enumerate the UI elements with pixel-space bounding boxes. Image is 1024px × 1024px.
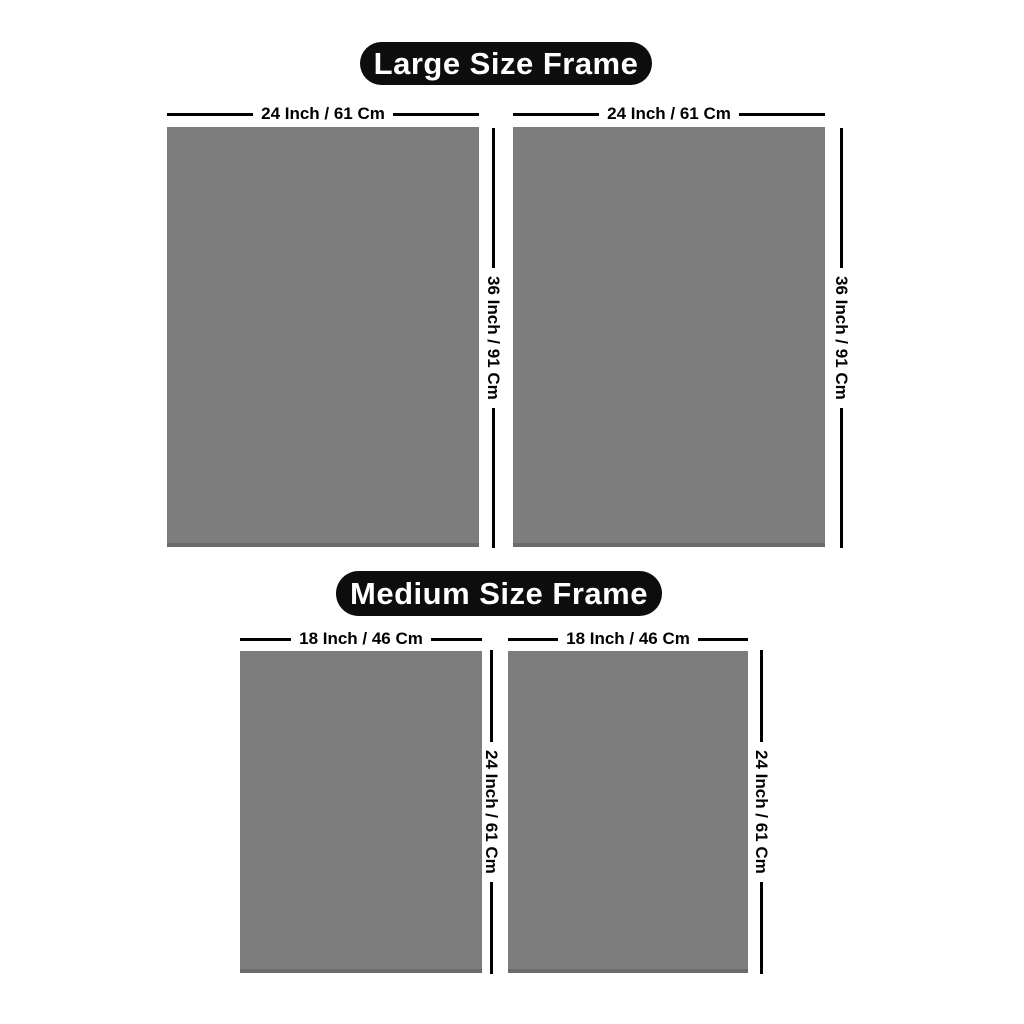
width-dimension-label: 18 Inch / 46 Cm: [299, 629, 423, 649]
section-title-large: Large Size Frame: [360, 42, 652, 85]
width-dimension-label: 18 Inch / 46 Cm: [566, 629, 690, 649]
frame-preview-large-left: [167, 127, 479, 547]
width-dimension-label: 24 Inch / 61 Cm: [607, 104, 731, 124]
dimension-line: [492, 128, 495, 268]
dimension-line: [490, 650, 493, 742]
section-title-medium: Medium Size Frame: [336, 571, 662, 616]
section-title-medium-label: Medium Size Frame: [350, 576, 648, 612]
dimension-line: [840, 128, 843, 268]
frame-preview-large-right: [513, 127, 825, 547]
height-dimension-medium-right: 24 Inch / 61 Cm: [750, 650, 772, 974]
dimension-line: [167, 113, 253, 116]
dimension-line: [840, 408, 843, 548]
width-dimension-large-right: 24 Inch / 61 Cm: [513, 102, 825, 126]
height-dimension-label: 36 Inch / 91 Cm: [831, 276, 851, 400]
frame-preview-medium-left: [240, 651, 482, 973]
height-dimension-label: 24 Inch / 61 Cm: [751, 750, 771, 874]
height-dimension-medium-left: 24 Inch / 61 Cm: [480, 650, 502, 974]
dimension-line: [508, 638, 558, 641]
dimension-line: [490, 882, 493, 974]
dimension-line: [431, 638, 482, 641]
dimension-line: [240, 638, 291, 641]
dimension-line: [739, 113, 825, 116]
dimension-line: [513, 113, 599, 116]
dimension-line: [760, 650, 763, 742]
width-dimension-medium-left: 18 Inch / 46 Cm: [240, 627, 482, 651]
height-dimension-label: 36 Inch / 91 Cm: [483, 276, 503, 400]
frame-preview-medium-right: [508, 651, 748, 973]
dimension-line: [393, 113, 479, 116]
width-dimension-label: 24 Inch / 61 Cm: [261, 104, 385, 124]
frame-size-guide: Large Size Frame 24 Inch / 61 Cm 24 Inch…: [0, 0, 1024, 1024]
width-dimension-medium-right: 18 Inch / 46 Cm: [508, 627, 748, 651]
height-dimension-large-left: 36 Inch / 91 Cm: [482, 128, 504, 548]
dimension-line: [492, 408, 495, 548]
height-dimension-label: 24 Inch / 61 Cm: [481, 750, 501, 874]
height-dimension-large-right: 36 Inch / 91 Cm: [830, 128, 852, 548]
dimension-line: [698, 638, 748, 641]
dimension-line: [760, 882, 763, 974]
width-dimension-large-left: 24 Inch / 61 Cm: [167, 102, 479, 126]
section-title-large-label: Large Size Frame: [374, 46, 639, 82]
